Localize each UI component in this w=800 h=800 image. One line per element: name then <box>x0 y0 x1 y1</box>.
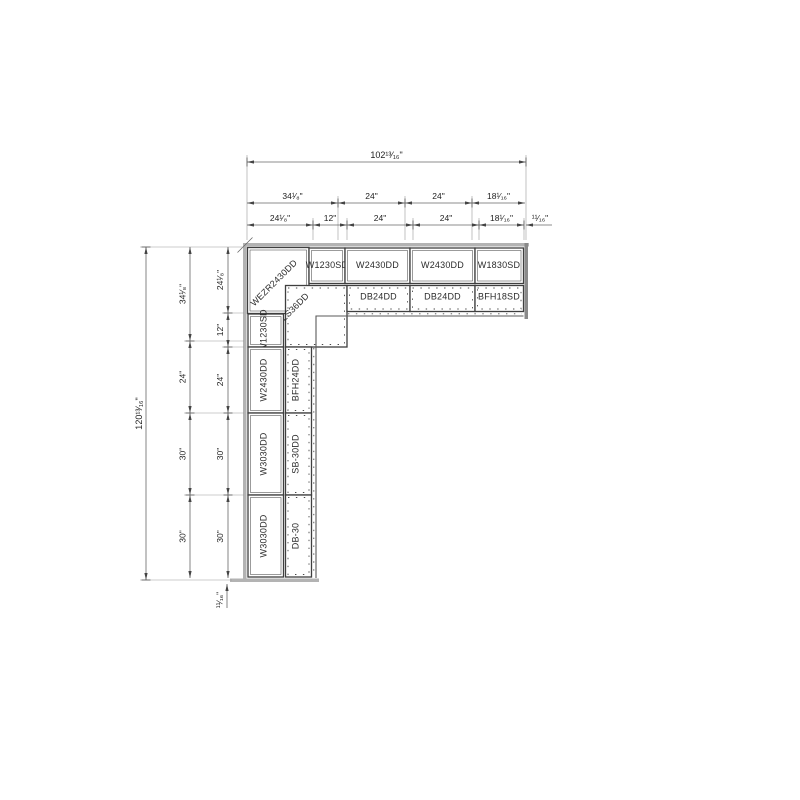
cabinet-left-base-1: BFH24DD <box>286 347 312 413</box>
wall-left <box>243 243 247 582</box>
cabinet-label: W2430DD <box>421 260 464 270</box>
dim-top-row3-gap: ¹¹⁄₁₆" <box>532 213 548 223</box>
cabinet-top-wall-4: W1830SD <box>475 248 524 284</box>
cabinet-label: W3030DD <box>259 514 269 557</box>
dim-top-row3-3: 24" <box>440 213 452 223</box>
dim-top-row3-1: 12" <box>324 213 336 223</box>
countertop-edges <box>314 314 524 578</box>
dim-top-row2-3: 18¹⁄₁₆" <box>487 191 510 201</box>
cabinet-label: W1230SD <box>306 260 349 270</box>
dim-left-col3-1: 12" <box>215 324 225 336</box>
cabinet-top-base-1: DB24DD <box>347 286 410 312</box>
dim-left-col2-0: 34¹⁄₈" <box>178 284 188 304</box>
wall-bottom-end <box>230 579 319 583</box>
dim-top-row3-2: 24" <box>374 213 386 223</box>
dim-left-col3-4: 30" <box>215 530 225 542</box>
cabinet-left-wall-3: W3030DD <box>248 413 284 495</box>
dim-left-col2-3: 30" <box>178 530 188 542</box>
cabinet-left-base-2: SB-30DD <box>286 413 312 495</box>
cabinet-label: DB24DD <box>424 292 461 302</box>
cabinet-label: W1230SD <box>259 309 269 352</box>
cabinet-top-base-3: BFH18SD <box>475 286 524 312</box>
dim-top-row3-0: 24¹⁄₈" <box>270 213 290 223</box>
dim-top-row2-2: 24" <box>432 191 444 201</box>
cabinet-top-base-2: DB24DD <box>410 286 475 312</box>
cabinet-label: SB-30DD <box>291 434 301 474</box>
dimension-bottom-gap: ¹¹⁄₁₆" <box>215 584 228 608</box>
cabinet-label: W3030DD <box>259 432 269 475</box>
dimension-left-total: 120¹³⁄₁₆" <box>134 247 244 580</box>
cabinet-top-wall-2: W2430DD <box>345 248 410 284</box>
cabinet-left-wall-4: W3030DD <box>248 495 284 577</box>
dimension-left-col2: 34¹⁄₈" 24" 30" 30" <box>178 247 245 578</box>
cabinet-label: W1830SD <box>478 260 521 270</box>
dim-left-col3-3: 30" <box>215 448 225 460</box>
cabinet-top-wall-1: W1230SD <box>306 248 349 284</box>
dim-left-total: 120¹³⁄₁₆" <box>134 397 144 429</box>
dim-top-row3-4: 18¹⁄₁₆" <box>490 213 513 223</box>
dimension-top-row3: 24¹⁄₈" 12" 24" 24" 18¹⁄₁₆" ¹¹⁄₁₆" <box>247 213 552 240</box>
wall-right-end <box>525 243 529 319</box>
cabinet-label: W2430DD <box>259 358 269 401</box>
cabinet-label: DB-30 <box>291 523 301 550</box>
dim-left-col2-2: 30" <box>178 448 188 460</box>
dim-left-col3-0: 24¹⁄₈" <box>215 270 225 290</box>
dim-top-total: 102¹³⁄₁₆" <box>370 150 402 160</box>
cabinet-plan-drawing: WEZR2430DD W1230SD W2430DD W2430DD W1830… <box>0 0 800 800</box>
dim-left-col2-1: 24" <box>178 371 188 383</box>
dim-left-col3-2: 24" <box>215 374 225 386</box>
dim-top-row2-1: 24" <box>365 191 377 201</box>
cabinet-label: BFH24DD <box>291 359 301 402</box>
countertop-front-line <box>316 316 524 578</box>
wall-top <box>243 243 529 247</box>
dim-top-row2-0: 34¹⁄₈" <box>282 191 302 201</box>
cabinet-left-wall-2: W2430DD <box>248 347 284 413</box>
cabinet-top-wall-3: W2430DD <box>410 248 475 284</box>
cabinet-left-wall-1: W1230SD <box>248 309 284 352</box>
cabinet-label: DB24DD <box>360 292 397 302</box>
cabinet-label: W2430DD <box>356 260 399 270</box>
dim-bottom-gap: ¹¹⁄₁₆" <box>215 592 225 608</box>
cabinet-left-base-3: DB-30 <box>286 495 312 577</box>
dimension-left-col3: 24¹⁄₈" 12" 24" 30" 30" <box>215 247 244 578</box>
cabinet-label: BFH18SD <box>478 292 520 302</box>
